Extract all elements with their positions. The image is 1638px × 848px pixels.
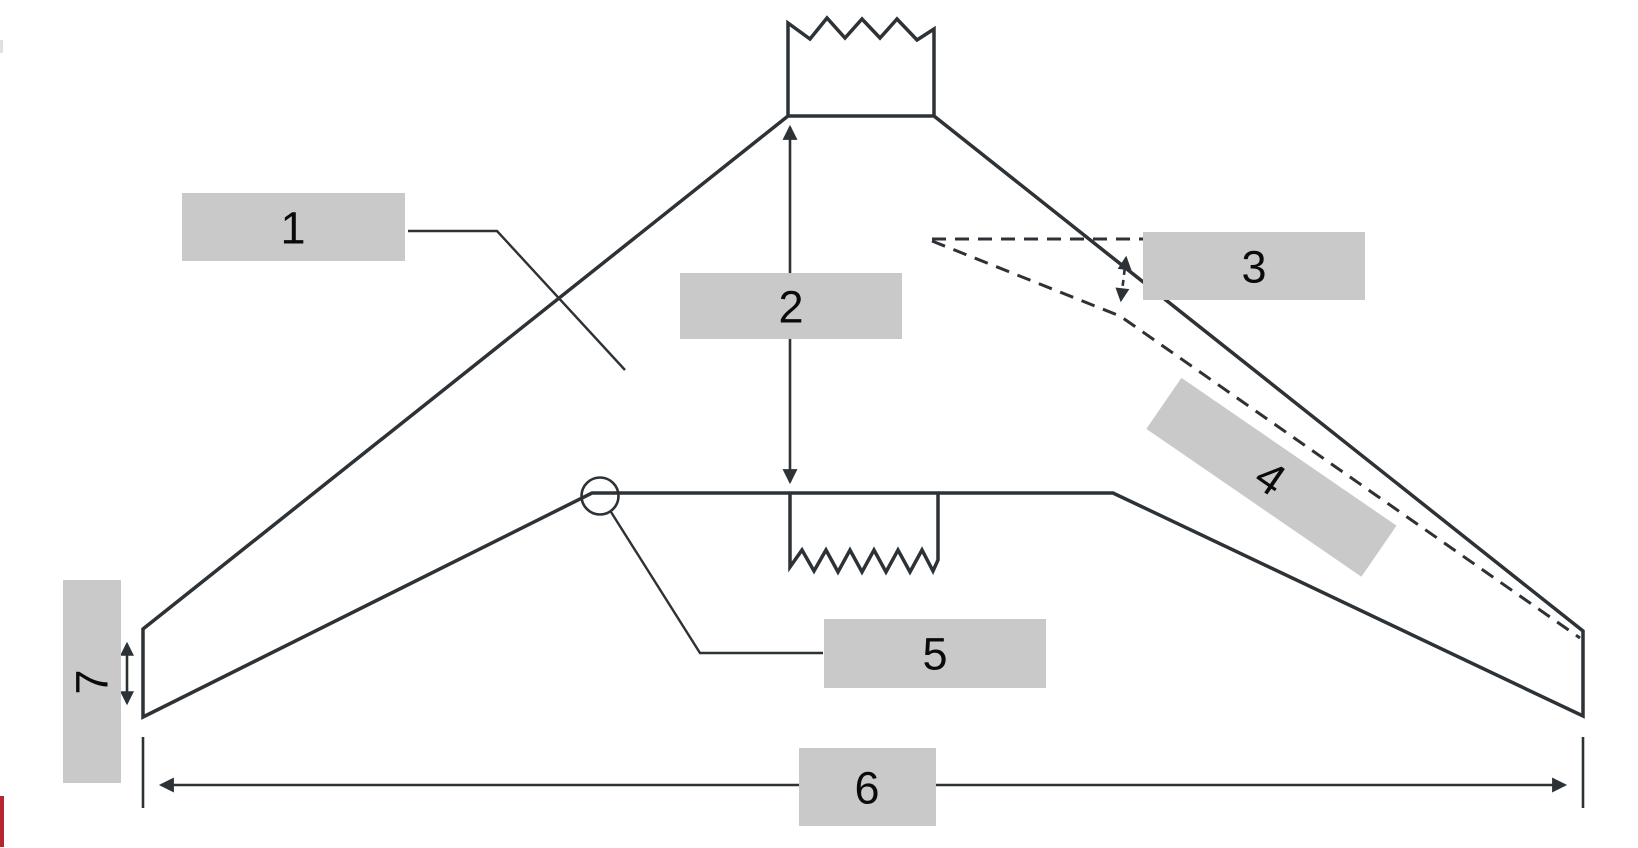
callout-2-label: 2 xyxy=(778,282,803,333)
callout-7: 7 xyxy=(63,580,121,783)
callout-1-leader-line xyxy=(408,231,625,370)
callout-5-label: 5 xyxy=(922,629,947,680)
logo-fragment-faint xyxy=(0,40,3,53)
callout-2: 2 xyxy=(680,273,902,339)
fuselage-break-bottom xyxy=(790,494,938,572)
callout-5: 5 xyxy=(824,619,1046,688)
callout-4: 4 xyxy=(1146,378,1396,577)
callout-1-label: 1 xyxy=(280,203,305,254)
callout-7-label: 7 xyxy=(67,669,118,694)
callout-3: 3 xyxy=(1143,232,1365,300)
callout-1: 1 xyxy=(182,193,405,261)
callout-3-label: 3 xyxy=(1241,242,1266,293)
wing-planform-figure: 1 2 3 4 5 6 7 xyxy=(0,0,1638,848)
logo-fragment-red xyxy=(0,796,4,847)
fuselage-break-top xyxy=(788,18,934,116)
callout-6-label: 6 xyxy=(854,763,879,814)
callout-6: 6 xyxy=(799,748,936,826)
wing-diagram-canvas: 1 2 3 4 5 6 7 xyxy=(0,0,1638,848)
